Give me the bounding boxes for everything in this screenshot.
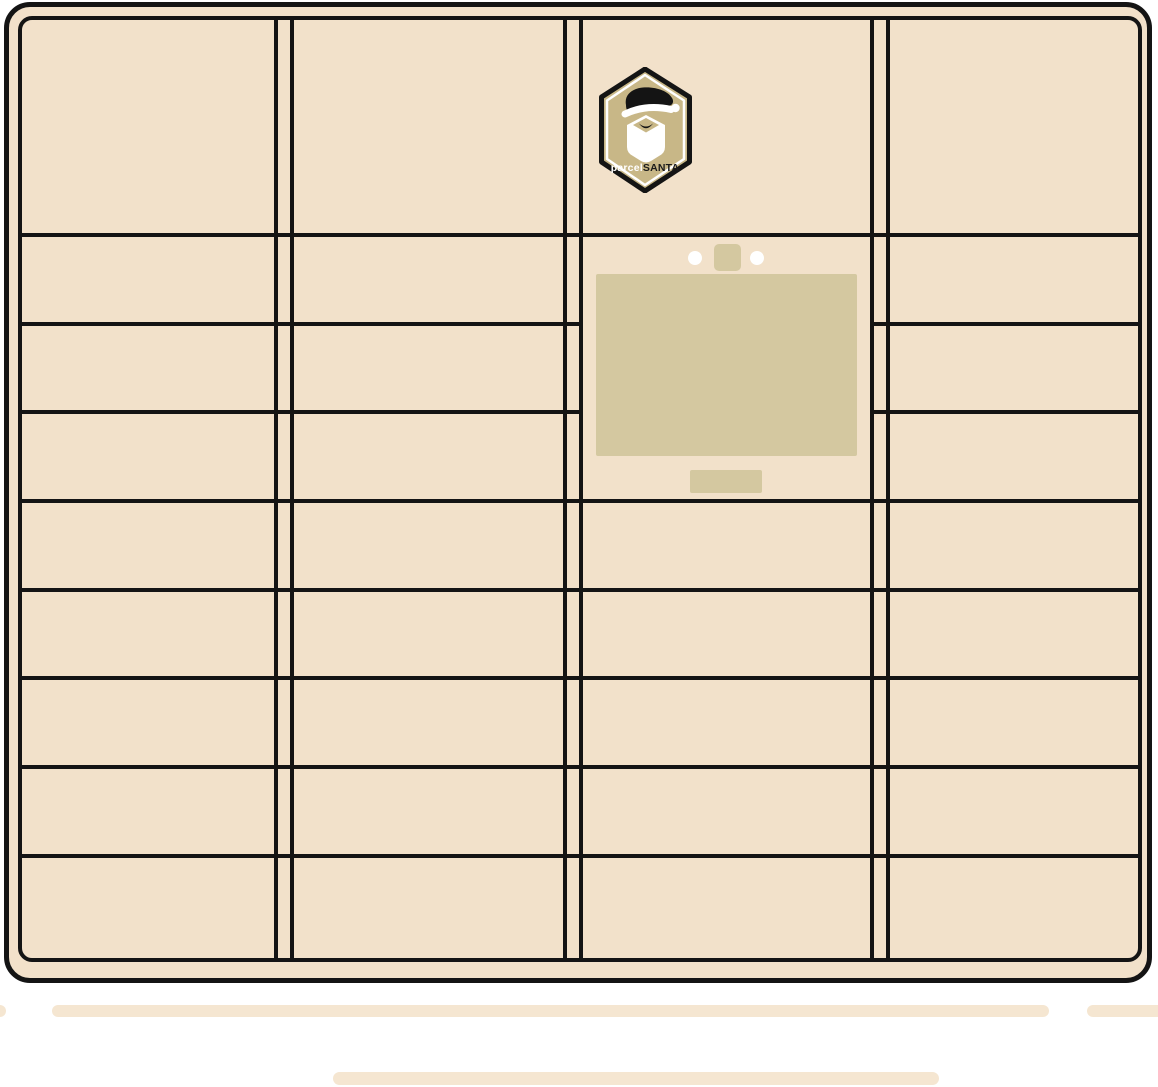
column-divider-line	[563, 18, 567, 958]
locker-door-column-1-r4[interactable]	[20, 413, 274, 498]
locker-door-column-2-r7[interactable]	[294, 679, 563, 764]
locker-door-column-4-r3[interactable]	[890, 325, 1140, 409]
locker-door-column-2-r9[interactable]	[294, 857, 563, 957]
ground-line	[333, 1072, 939, 1085]
locker-door-column-4-r6[interactable]	[890, 591, 1140, 675]
locker-door-column-3-r3[interactable]	[583, 591, 870, 675]
dispenser-slot	[690, 470, 762, 493]
locker-door-column-1-r8[interactable]	[20, 768, 274, 853]
locker-door-column-1-r1[interactable]	[20, 23, 274, 232]
indicator-light	[750, 251, 764, 265]
locker-door-column-2-r8[interactable]	[294, 768, 563, 853]
locker-door-column-4-r9[interactable]	[890, 857, 1140, 957]
parcel-locker-illustration: parcelSANTA	[0, 0, 1158, 1087]
locker-door-column-1-r5[interactable]	[20, 502, 274, 587]
locker-door-column-4-r4[interactable]	[890, 413, 1140, 498]
ground-line	[1087, 1005, 1158, 1017]
locker-door-column-4-r7[interactable]	[890, 679, 1140, 764]
indicator-light	[688, 251, 702, 265]
locker-door-column-2-r2[interactable]	[294, 236, 563, 321]
locker-door-column-4-r1[interactable]	[890, 23, 1140, 232]
locker-door-column-4-r5[interactable]	[890, 502, 1140, 587]
locker-door-column-1-r7[interactable]	[20, 679, 274, 764]
camera	[714, 244, 741, 271]
locker-door-column-2-r6[interactable]	[294, 591, 563, 675]
column-divider-line	[274, 18, 278, 958]
locker-door-column-3-r6[interactable]	[583, 857, 870, 957]
locker-door-column-1-r2[interactable]	[20, 236, 274, 321]
locker-door-column-3-r2[interactable]	[583, 502, 870, 587]
locker-door-column-1-r6[interactable]	[20, 591, 274, 675]
column-divider-line	[870, 18, 874, 958]
locker-door-column-4-r8[interactable]	[890, 768, 1140, 853]
ground-line	[52, 1005, 1049, 1017]
ground-line	[0, 1005, 6, 1017]
locker-door-column-3-r4[interactable]	[583, 679, 870, 764]
locker-door-column-1-r3[interactable]	[20, 325, 274, 409]
locker-door-column-2-r4[interactable]	[294, 413, 563, 498]
locker-door-column-1-r9[interactable]	[20, 857, 274, 957]
kiosk-screen[interactable]	[596, 274, 857, 456]
locker-door-column-2-r5[interactable]	[294, 502, 563, 587]
locker-door-column-3-r5[interactable]	[583, 768, 870, 853]
locker-door-column-2-r1[interactable]	[294, 23, 563, 232]
logo-panel	[583, 23, 870, 232]
locker-door-column-2-r3[interactable]	[294, 325, 563, 409]
locker-door-column-4-r2[interactable]	[890, 236, 1140, 321]
